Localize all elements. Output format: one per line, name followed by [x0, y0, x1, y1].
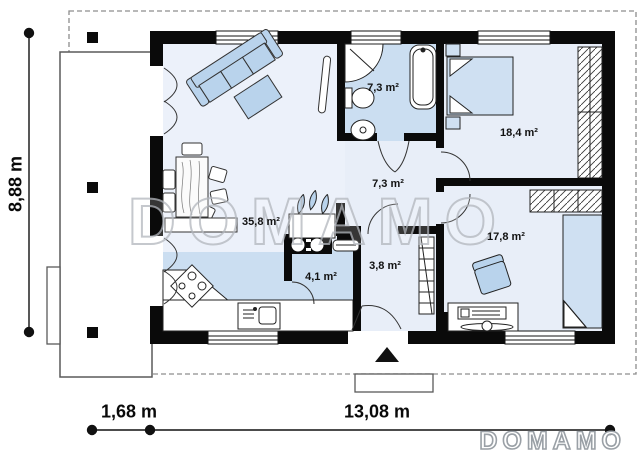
- main-bedroom-window: [478, 31, 550, 44]
- entry-area-label: 3,8 m²: [369, 260, 401, 272]
- nightstand: [446, 44, 460, 56]
- dining-chair: [182, 143, 202, 155]
- bathroom-window: [351, 31, 401, 44]
- washer-dryer-block: [286, 236, 332, 254]
- entry-porch-slab: [355, 374, 433, 392]
- hallway-area-label: 7,3 m²: [372, 178, 404, 190]
- dining-chair: [163, 193, 175, 212]
- second-bedroom-area-label: 17,8 m²: [487, 231, 525, 243]
- brand-logo: DOMAMO: [479, 429, 626, 454]
- dining-chair: [210, 188, 228, 204]
- desk: [448, 303, 518, 331]
- kitchen-window: [208, 331, 278, 344]
- washbasin: [351, 120, 375, 140]
- living-room-area-label: 35,8 m²: [242, 216, 280, 228]
- kitchen-sink: [238, 303, 280, 329]
- wardrobe-second-bedroom: [530, 190, 602, 212]
- depth-dimension-label: 8,88 m: [6, 156, 27, 212]
- nightstand: [446, 117, 460, 129]
- terrace-width-dimension-label: 1,68 m: [101, 402, 157, 423]
- sideboard: [165, 218, 237, 232]
- bathtub: [410, 45, 436, 109]
- utility-area-label: 4,1 m²: [305, 271, 337, 283]
- bathroom-area-label: 7,3 m²: [367, 82, 399, 94]
- second-bedroom-window: [505, 331, 575, 344]
- single-bed: [563, 215, 602, 328]
- loft-ladder: [419, 237, 434, 314]
- dining-chair: [163, 170, 175, 189]
- terrace-step: [47, 267, 60, 344]
- entrance-arrow-icon: [375, 347, 399, 362]
- house-width-dimension-label: 13,08 m: [344, 402, 410, 423]
- utility-radiator: [333, 240, 359, 251]
- wardrobe-main-bedroom: [578, 47, 602, 178]
- terrace-outline: [60, 52, 152, 377]
- floor-plan-page: DOMAMO 35,8 m² 7,3 m² 7,3 m² 18,4 m² 17,…: [0, 0, 640, 460]
- floor-plan-drawing: [0, 0, 640, 460]
- dining-table: [176, 157, 208, 217]
- main-bedroom-area-label: 18,4 m²: [500, 127, 538, 139]
